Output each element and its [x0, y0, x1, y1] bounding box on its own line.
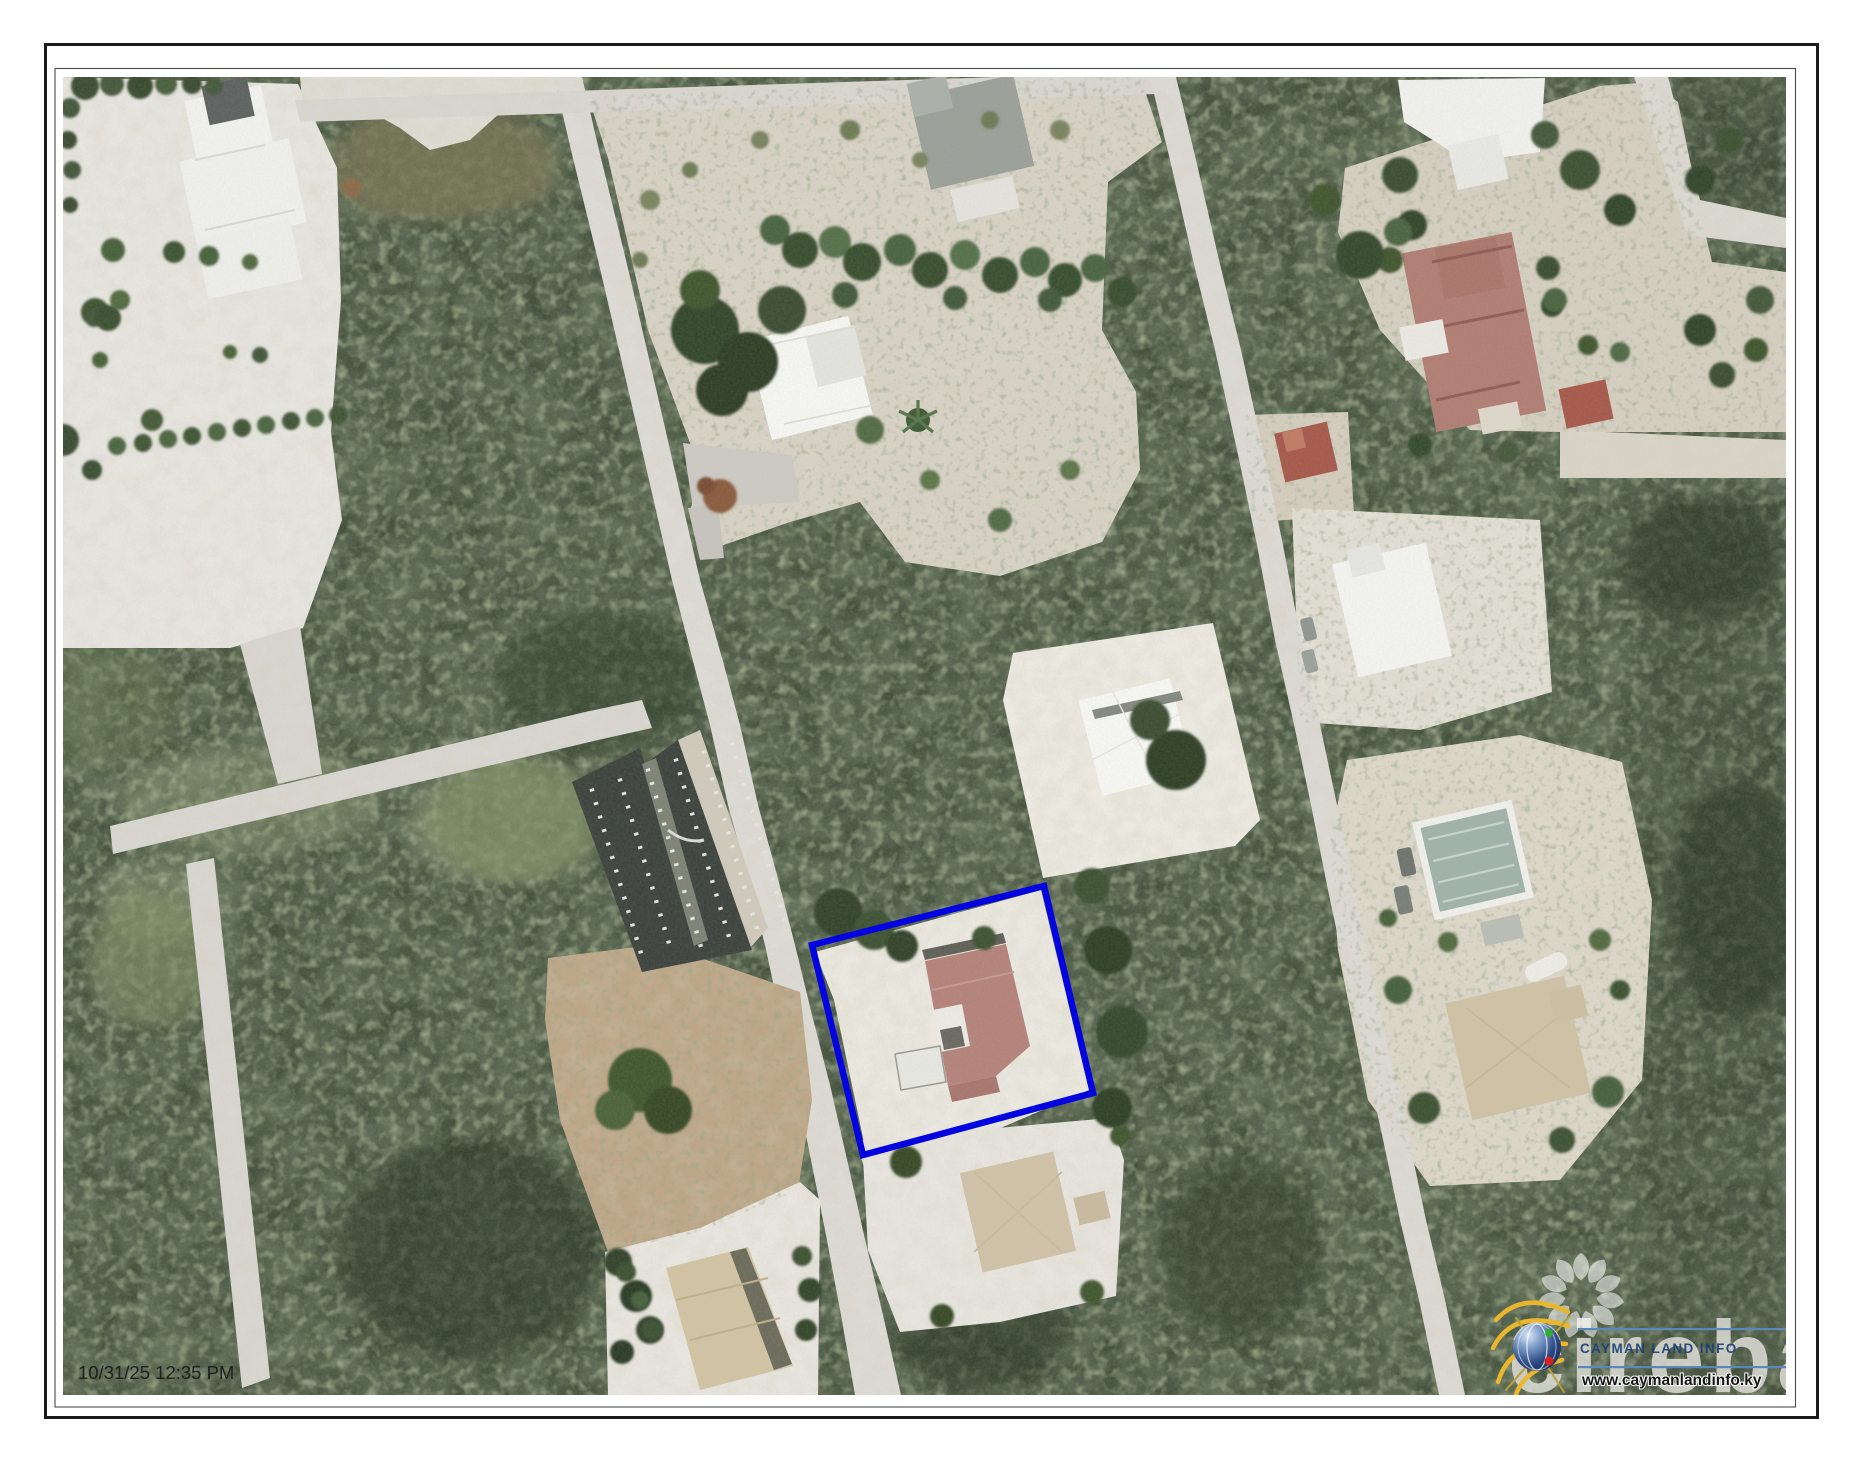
svg-text:10/31/25 12:35 PM: 10/31/25 12:35 PM	[78, 1362, 234, 1383]
svg-text:CAYMAN LAND INFO: CAYMAN LAND INFO	[1580, 1341, 1738, 1356]
svg-text:www.caymanlandinfo.ky: www.caymanlandinfo.ky	[1581, 1372, 1762, 1389]
